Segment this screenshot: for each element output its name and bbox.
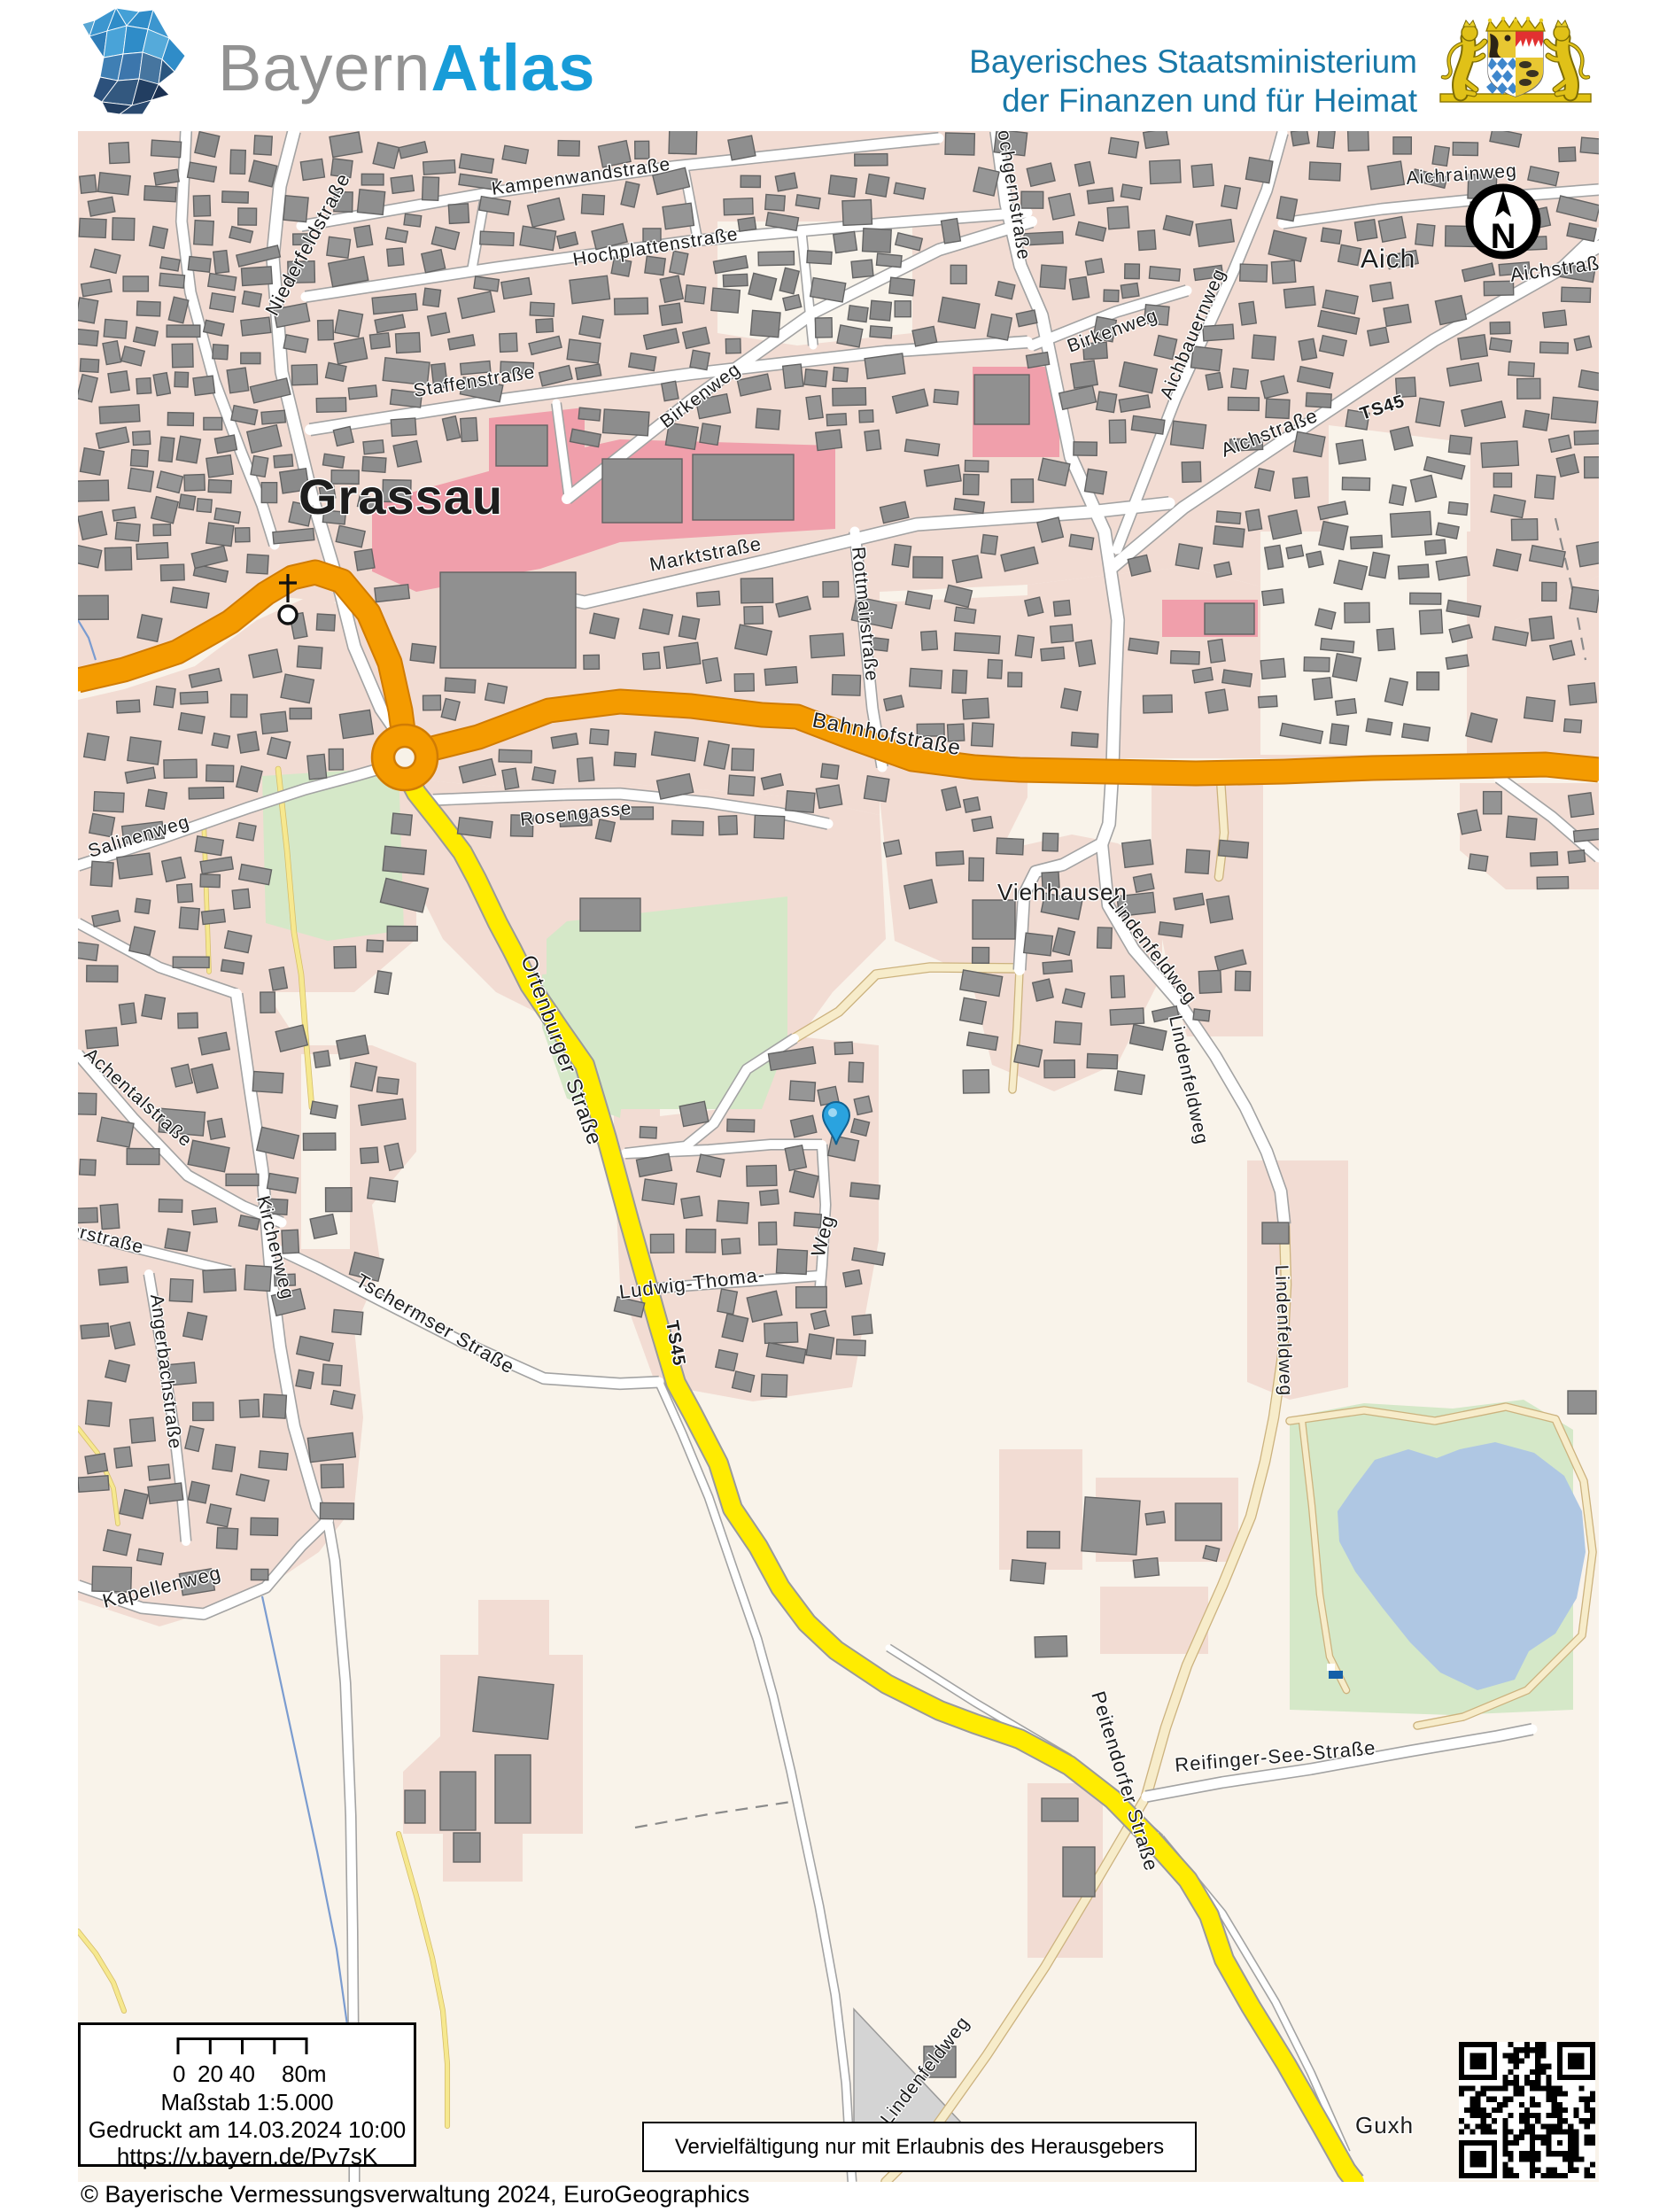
svg-text:Guxh: Guxh <box>1355 2112 1414 2138</box>
svg-text:Grassau: Grassau <box>299 469 503 524</box>
svg-text:N: N <box>1491 217 1516 256</box>
svg-text:Aich: Aich <box>1361 244 1415 274</box>
